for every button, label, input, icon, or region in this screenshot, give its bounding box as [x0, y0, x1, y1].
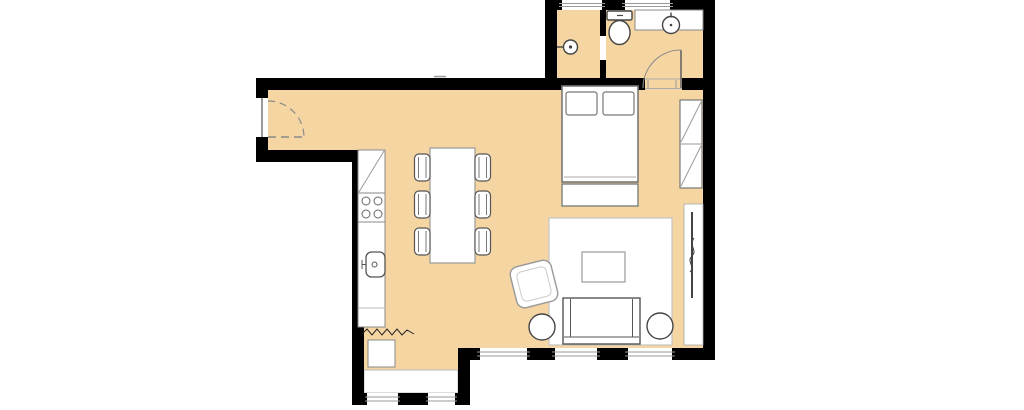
wall-living-bottom-4	[672, 348, 715, 360]
wall-entry-left-upper	[256, 78, 268, 98]
armchair	[509, 259, 560, 310]
wall-bath-divider-upper	[600, 10, 606, 36]
wall-living-bottom-3	[597, 348, 628, 360]
window-shower-top	[559, 0, 605, 10]
window-living-south-2	[552, 348, 600, 360]
wall-right-outer	[703, 0, 715, 360]
wall-entry-bottom	[256, 150, 364, 162]
wall-bath-left	[545, 0, 557, 88]
floor-plan-page	[0, 0, 1024, 410]
wall-bath-divider-lower	[600, 60, 606, 78]
wall-living-bottom-2	[527, 348, 555, 360]
stove	[358, 193, 385, 222]
pillow-right	[603, 92, 634, 115]
bed-bench	[562, 184, 638, 206]
bed	[562, 86, 638, 182]
window-wc-top	[622, 0, 673, 10]
dining-chair	[415, 228, 431, 255]
sofa	[563, 298, 640, 344]
dining-chair	[415, 154, 431, 181]
wall-bath-bottom-right	[682, 78, 715, 90]
floor-plan-canvas	[0, 0, 1024, 410]
wall-balcony-bottom-2	[398, 393, 428, 405]
dining-chair	[475, 154, 491, 181]
tv-unit	[684, 204, 703, 345]
sleeping-area-furniture	[562, 86, 702, 206]
pillow-left	[566, 92, 597, 115]
wall-balcony-bottom-1	[352, 393, 367, 405]
wall-living-bottom-1	[458, 348, 480, 360]
dining-set	[415, 148, 491, 263]
dining-table	[430, 148, 475, 263]
window-living-south-3	[625, 348, 675, 360]
dining-chair	[475, 228, 491, 255]
balcony-floor	[364, 370, 458, 393]
wardrobe	[680, 100, 702, 188]
toilet	[607, 11, 632, 45]
dining-chair	[415, 191, 431, 218]
coffee-table	[582, 252, 625, 282]
side-table-right	[647, 313, 673, 339]
dining-chair	[475, 191, 491, 218]
wall-main-top	[256, 78, 560, 90]
window-balcony-south-1	[365, 393, 400, 405]
side-table-left	[529, 314, 555, 340]
window-balcony-south-2	[426, 393, 457, 405]
window-living-south-1	[477, 348, 530, 360]
washing-machine	[368, 340, 395, 367]
floor-entry-hall	[268, 90, 364, 150]
kitchen-cabinet	[358, 150, 385, 193]
